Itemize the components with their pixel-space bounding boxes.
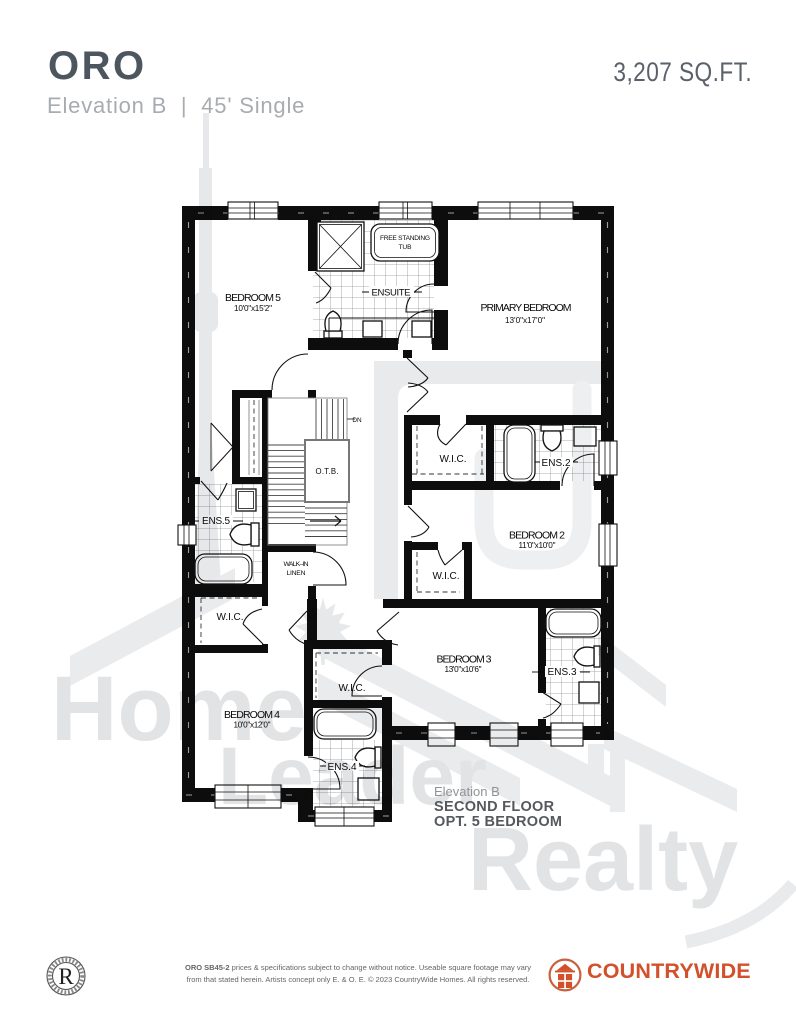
- svg-text:DN: DN: [352, 417, 362, 424]
- svg-text:13'0"x17'0": 13'0"x17'0": [505, 316, 545, 325]
- svg-text:TUB: TUB: [399, 244, 413, 251]
- svg-text:BEDROOM 2: BEDROOM 2: [509, 530, 565, 542]
- svg-text:O.T.B.: O.T.B.: [316, 467, 339, 476]
- svg-text:ENSUITE: ENSUITE: [372, 288, 411, 299]
- svg-text:11'0"x10'0": 11'0"x10'0": [519, 541, 556, 550]
- svg-text:ENS.3: ENS.3: [548, 667, 577, 678]
- svg-text:LINEN: LINEN: [287, 570, 306, 577]
- svg-text:WALK–IN: WALK–IN: [284, 561, 309, 568]
- svg-text:W.I.C.: W.I.C.: [217, 612, 244, 623]
- svg-text:10'0"x15'2": 10'0"x15'2": [234, 304, 272, 313]
- svg-text:ENS.2: ENS.2: [542, 458, 571, 469]
- svg-text:BEDROOM 3: BEDROOM 3: [437, 654, 492, 666]
- svg-text:W.I.C.: W.I.C.: [433, 571, 460, 582]
- svg-text:PRIMARY BEDROOM: PRIMARY BEDROOM: [481, 302, 572, 314]
- svg-text:R: R: [58, 964, 74, 989]
- svg-text:BEDROOM 5: BEDROOM 5: [225, 292, 281, 304]
- svg-text:FREE STANDING: FREE STANDING: [380, 235, 430, 242]
- svg-text:13'0"x10'6": 13'0"x10'6": [445, 665, 482, 674]
- svg-text:W.I.C.: W.I.C.: [440, 454, 467, 465]
